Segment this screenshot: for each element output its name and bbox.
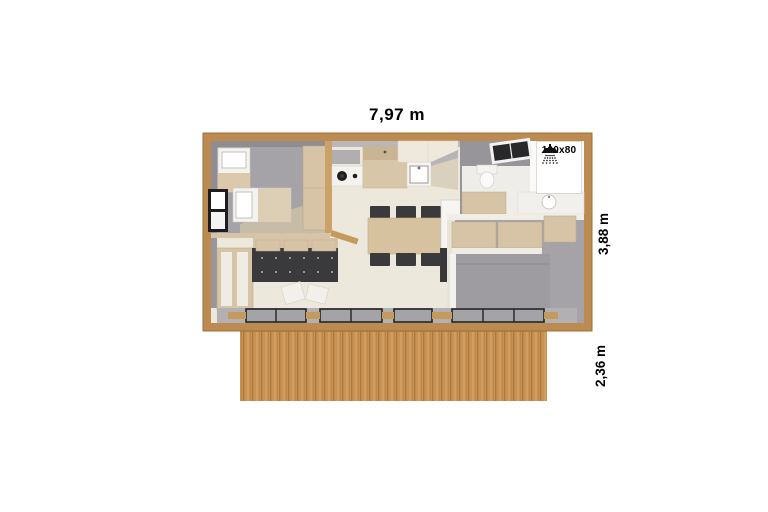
dining-chair — [370, 253, 390, 266]
floorplan-page: 7,97 m 3,88 m 2,36 m 100x80 — [0, 0, 768, 512]
dimension-width-label: 7,97 m — [337, 105, 457, 125]
glass-door-panel — [246, 309, 306, 322]
kitchen-sink-icon — [407, 162, 431, 186]
dining-chair — [396, 253, 416, 266]
partition-wall — [211, 233, 330, 238]
dining-chair — [421, 206, 441, 219]
overhead-cabinet — [498, 222, 542, 248]
shower-size-box: 100x80 — [537, 142, 581, 193]
shower-icon — [537, 143, 563, 167]
skylight-window-icon — [491, 139, 531, 162]
window-left-icon — [208, 189, 228, 232]
dining-chair — [421, 253, 441, 266]
glass-door-panel — [394, 309, 432, 322]
bathroom-cabinet — [462, 192, 506, 214]
glass-door-panel — [452, 309, 544, 322]
dining-chair — [396, 206, 416, 219]
dining-chair — [370, 206, 390, 219]
overhead-cabinet — [544, 216, 576, 242]
stove-burners-icon — [332, 166, 363, 186]
sofa — [252, 240, 338, 282]
floorplan-drawing — [0, 0, 768, 512]
terrace-deck — [240, 329, 547, 401]
kitchen-wall — [325, 141, 332, 233]
dining-table — [368, 218, 441, 254]
single-bed — [233, 188, 291, 222]
glass-door-panel — [320, 309, 382, 322]
dimension-depth-label: 3,88 m — [596, 202, 612, 266]
overhead-cabinet — [452, 222, 496, 248]
single-bed — [218, 148, 250, 192]
washbasin-icon — [518, 192, 584, 214]
sliding-bay-doors — [217, 308, 577, 323]
dimension-terrace-label: 2,36 m — [593, 334, 609, 398]
room-master-bedroom — [447, 214, 584, 323]
